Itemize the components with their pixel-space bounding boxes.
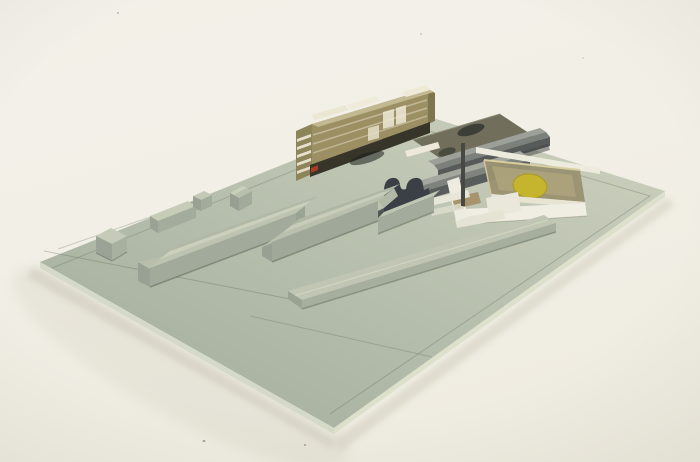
model-scene [0, 0, 700, 462]
dust-speck [203, 440, 206, 442]
amber-building-right-face [428, 89, 435, 124]
dust-speck [304, 444, 306, 446]
mast [461, 143, 465, 206]
amber-white-panel [396, 105, 406, 125]
dust-speck [420, 33, 422, 35]
dust-speck [582, 57, 584, 59]
amber-white-panel [383, 109, 394, 129]
scene-root [0, 12, 674, 462]
architectural-model-photograph [0, 0, 700, 462]
dust-speck [117, 12, 119, 14]
